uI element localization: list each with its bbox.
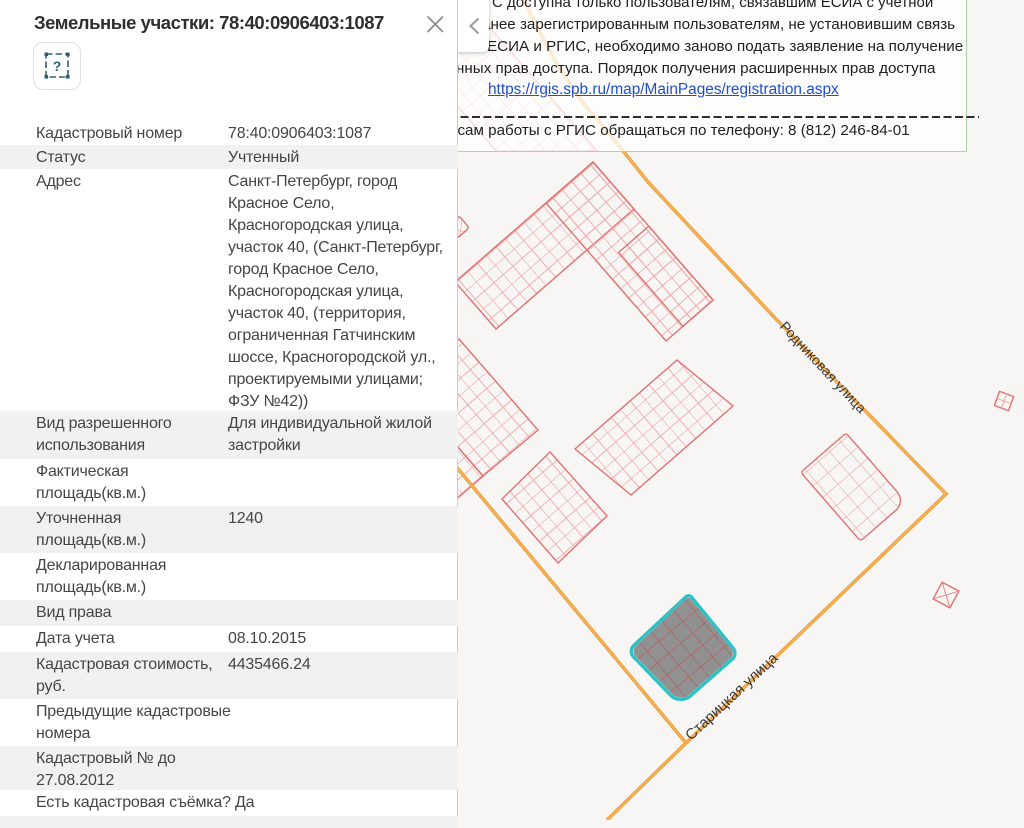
svg-text:Родниковая улица: Родниковая улица [777, 318, 870, 416]
svg-text:?: ? [53, 58, 62, 74]
